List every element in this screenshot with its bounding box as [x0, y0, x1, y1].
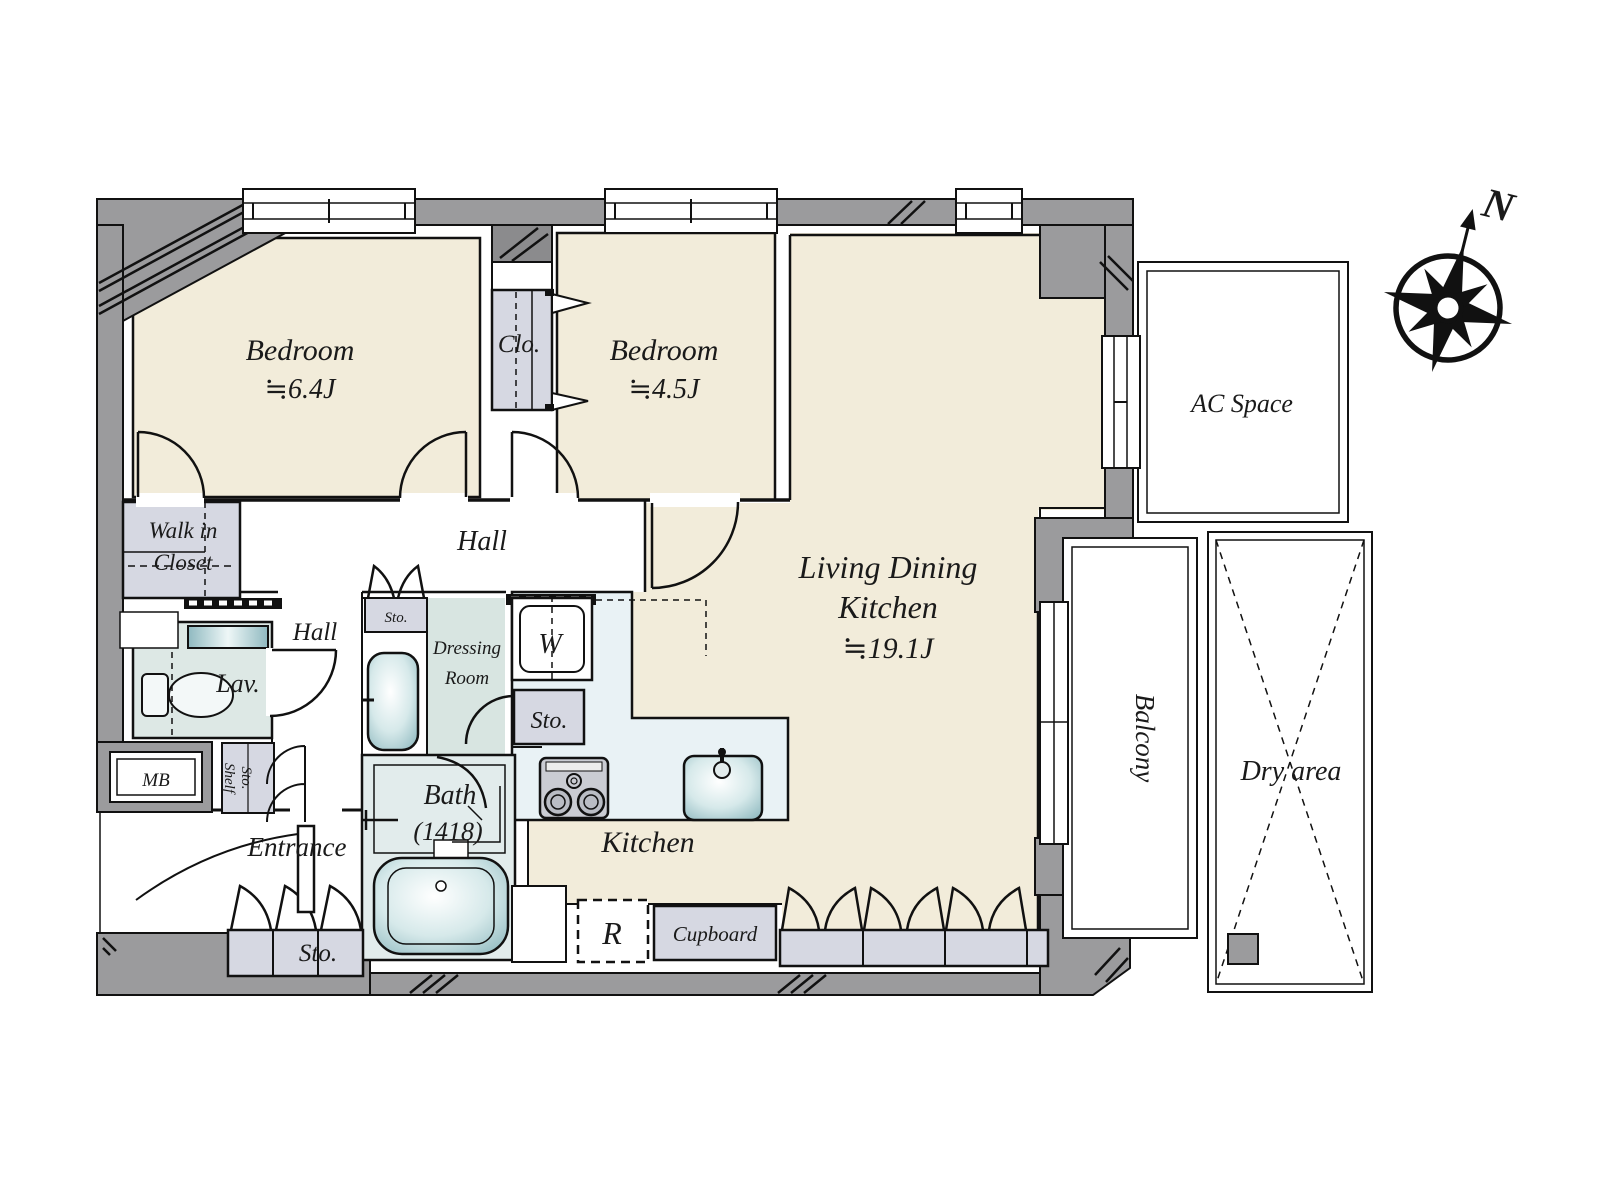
compass-north-label: N: [1477, 180, 1520, 233]
door-lav: [270, 650, 336, 716]
bath-label: Bath: [424, 780, 477, 811]
wic-label-line1: Walk in: [149, 518, 218, 543]
dressing-label-line2: Room: [444, 668, 489, 689]
bedroom1-label: Bedroom: [246, 334, 355, 367]
entrance-label: Entrance: [247, 832, 347, 862]
ac-space-label: AC Space: [1189, 389, 1293, 418]
window-bedroom2: [605, 189, 777, 233]
bath-size: (1418): [413, 817, 482, 846]
ldk-size: ≒19.1J: [843, 632, 936, 665]
clo-label: Clo.: [498, 331, 540, 358]
sto-hall-label: Sto.: [531, 708, 568, 734]
floor-plan-page: N Bedroom ≒6.4J Bedroom ≒4.5J Living Din…: [0, 0, 1600, 1200]
bedroom1-size: ≒6.4J: [265, 374, 337, 405]
balcony-area: [1063, 538, 1197, 938]
hall-lower-label: Hall: [292, 619, 338, 646]
kitchen-sink-icon: [684, 748, 762, 820]
shoe-storage: [228, 886, 363, 976]
folding-door-icon: [231, 886, 271, 930]
lav-label: Lav.: [215, 669, 260, 698]
sto-dressing-label: Sto.: [385, 610, 408, 626]
sto-shelf-line2: Shelf: [221, 763, 237, 795]
kitchen-label: Kitchen: [600, 826, 694, 859]
wall-bottom-band: [370, 973, 1052, 995]
compass-rose-icon: N: [1368, 162, 1544, 388]
dry-area-pillar: [1228, 934, 1258, 964]
stove-icon: [540, 758, 608, 818]
lav-counter: [188, 626, 268, 648]
closet-gap: [492, 262, 552, 290]
floor-plan-svg: N Bedroom ≒6.4J Bedroom ≒4.5J Living Din…: [0, 0, 1600, 1200]
window-balcony-sliding: [1040, 602, 1068, 844]
window-ldk-right: [1102, 336, 1140, 468]
kitchen-gap: [512, 886, 566, 962]
sto-shelf-line1: Sto.: [238, 767, 254, 790]
refrigerator-label: R: [601, 915, 622, 951]
wall-balcony-bottom: [1035, 838, 1063, 895]
hall-upper-label: Hall: [456, 526, 507, 557]
balcony-label: Balcony: [1130, 694, 1160, 782]
ldk-label-line2: Kitchen: [837, 589, 938, 625]
washer-label: W: [538, 629, 564, 660]
bedroom2-size: ≒4.5J: [629, 374, 701, 405]
mb-label: MB: [141, 770, 170, 791]
washbasin-icon: [368, 653, 418, 750]
cupboard-label: Cupboard: [673, 922, 758, 946]
bedroom2-label: Bedroom: [610, 334, 719, 367]
ldk-label-line1: Living Dining: [798, 549, 978, 585]
dry-area-label: Dry area: [1240, 756, 1342, 787]
bathtub-icon: [374, 858, 508, 954]
dressing-room-area: [362, 566, 505, 757]
folding-door-icon: [321, 886, 361, 930]
dressing-label-line1: Dressing: [432, 638, 501, 659]
sto-entrance-label: Sto.: [299, 940, 337, 967]
window-bedroom1: [243, 189, 415, 233]
window-ldk-top: [956, 189, 1022, 233]
wic-label-line2: Closet: [154, 550, 213, 575]
